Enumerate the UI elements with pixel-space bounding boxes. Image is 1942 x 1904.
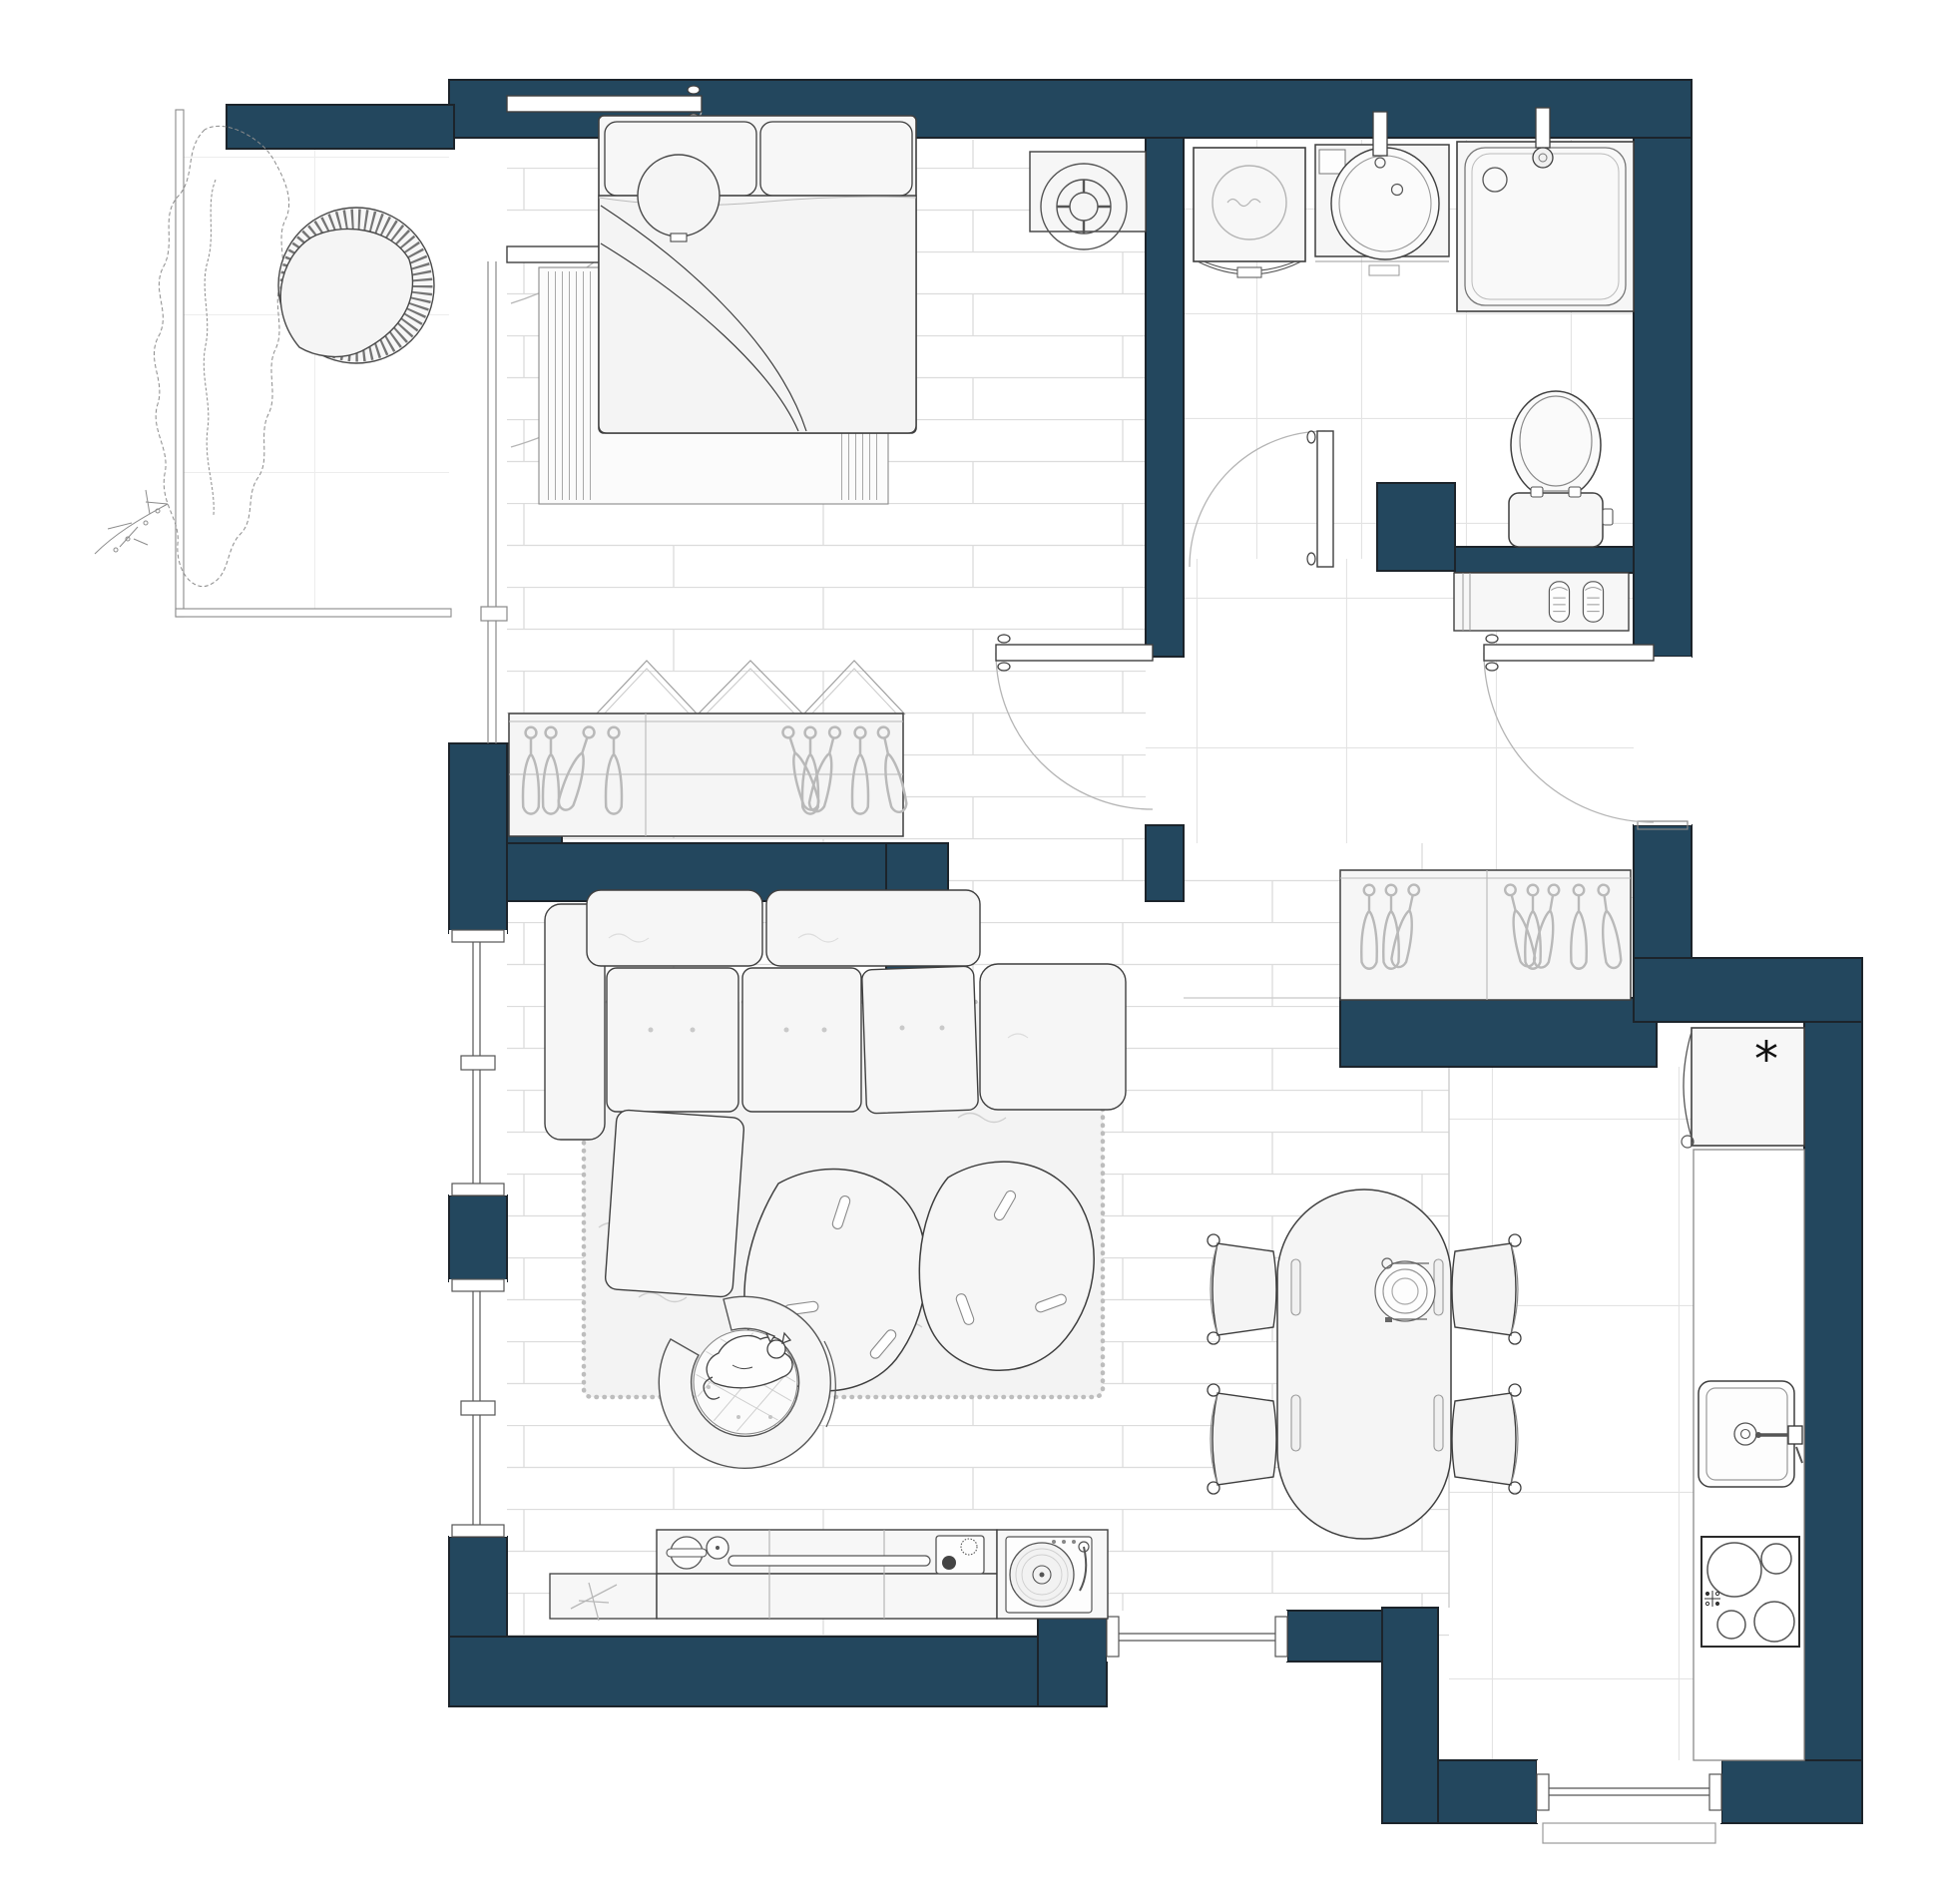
rattan-lounge-chair xyxy=(278,208,434,363)
wall-step-horizontal xyxy=(1634,958,1862,1022)
pillow xyxy=(760,122,912,196)
sofa-back-cushion xyxy=(766,890,980,966)
balcony-glass-wall xyxy=(481,261,507,743)
freezer-asterisk: * xyxy=(1754,1032,1778,1088)
wall-hall-bottom xyxy=(1340,998,1657,1067)
wall-wc-block xyxy=(1377,483,1455,571)
balcony-railing-left xyxy=(176,110,184,617)
sofa-seat-cushion xyxy=(607,968,738,1112)
sofa-chaise-bottom xyxy=(605,1110,744,1297)
double-bed xyxy=(599,116,916,433)
wall-living-bottom xyxy=(449,1637,1061,1706)
washing-machine xyxy=(1194,148,1305,277)
entrance-door-leaf xyxy=(1484,645,1654,661)
wall-kitchen-bottom-right xyxy=(1721,1760,1862,1823)
window-left-2 xyxy=(449,1279,507,1537)
balcony-floor xyxy=(182,112,449,617)
window-living-bottom xyxy=(1107,1611,1287,1662)
wall-kitchen-bottom-left xyxy=(1438,1760,1537,1823)
toilet-cistern xyxy=(1509,493,1603,547)
record-player xyxy=(997,1530,1108,1619)
window-left-1 xyxy=(449,930,507,1195)
wall-living-bottom-right xyxy=(1287,1611,1382,1662)
wall-right-below-entrance xyxy=(1634,825,1692,958)
sideboard-bottom xyxy=(657,1574,997,1619)
sofa-back-cushion xyxy=(587,890,762,966)
duvet xyxy=(599,196,916,433)
hallway-doorway-floor xyxy=(1146,657,1184,825)
bedroom-door-leaf xyxy=(996,645,1153,661)
wall-kitchen-right xyxy=(1804,1022,1862,1764)
soundbar xyxy=(728,1556,930,1566)
floor-plan-drawing: * xyxy=(0,0,1942,1904)
wall-right-upper xyxy=(1634,138,1692,657)
balcony-door-leaf-1 xyxy=(507,96,702,112)
vanity-faucet xyxy=(1373,112,1387,156)
wall-left-upper xyxy=(449,743,507,933)
window-kitchen-bottom xyxy=(1537,1760,1721,1843)
sofa-seat-cushion xyxy=(862,966,979,1114)
dining-table xyxy=(1277,1190,1451,1539)
receiver-device xyxy=(936,1536,984,1574)
hall-wardrobe xyxy=(1340,870,1631,1000)
floor-plan-canvas: * xyxy=(0,0,1942,1904)
dining-chair xyxy=(1208,1234,1276,1344)
dining-chair xyxy=(1452,1384,1521,1494)
wall-step-vertical xyxy=(1382,1608,1438,1823)
shower-head xyxy=(1533,148,1553,168)
wall-partition-corner xyxy=(1146,825,1184,901)
entrance-opening xyxy=(1634,657,1692,829)
sofa-seat-cushion xyxy=(742,968,861,1112)
sideboard-shelf-left xyxy=(550,1574,657,1619)
kitchen-sink xyxy=(1699,1381,1802,1487)
kitchen: * xyxy=(1682,1028,1804,1760)
flush-button xyxy=(1603,509,1613,525)
wall-living-bottom-step xyxy=(1038,1611,1107,1706)
shoe-cabinet xyxy=(1454,573,1629,631)
sofa-chaise-right xyxy=(980,964,1126,1110)
wall-wc-bottom xyxy=(1455,547,1634,573)
wall-left-pier xyxy=(449,1195,507,1281)
shower-head-pipe xyxy=(1536,108,1550,148)
balcony-railing-bottom xyxy=(176,609,451,617)
dining-chair xyxy=(1452,1234,1521,1344)
wall-balcony-stub xyxy=(227,105,454,149)
bathroom-door-leaf xyxy=(1317,431,1333,567)
refrigerator: * xyxy=(1682,1028,1804,1148)
wall-bed-bath-partition xyxy=(1146,138,1184,657)
cooktop xyxy=(1701,1537,1799,1647)
dining-chair xyxy=(1208,1384,1276,1494)
